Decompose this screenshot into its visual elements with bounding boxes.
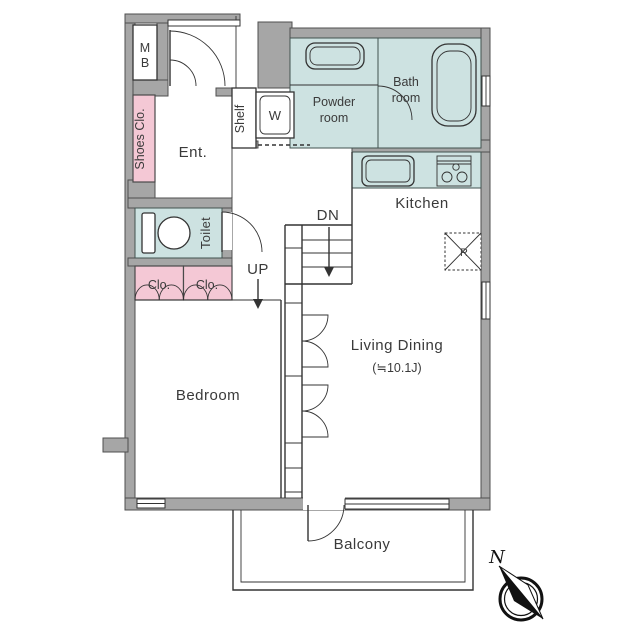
up-label: UP xyxy=(247,261,269,278)
shoes-closet-label: Shoes Clo. xyxy=(133,108,147,169)
washer-label: W xyxy=(269,108,282,123)
balcony-label: Balcony xyxy=(334,536,391,553)
wall-toilet-top xyxy=(128,198,232,208)
up-arrow-head xyxy=(253,299,263,309)
wall-mb-right xyxy=(157,23,168,83)
living-dining-size-label: (≒10.1J) xyxy=(372,361,421,375)
wall-toilet-bottom xyxy=(128,258,232,266)
entrance-label: Ent. xyxy=(179,144,208,161)
compass-north-label: N xyxy=(488,547,506,568)
mb-label-line2: B xyxy=(141,56,149,70)
dn-arrow-head xyxy=(324,267,334,277)
powder-room-label-line1: Powder xyxy=(313,95,355,109)
balcony-doorway-gap xyxy=(303,497,345,510)
toilet-doorway-gap xyxy=(222,212,232,250)
floor-plan-svg: M B Shoes Clo. Ent. Shelf W Powder room … xyxy=(0,0,640,640)
floor-plan: M B Shoes Clo. Ent. Shelf W Powder room … xyxy=(0,0,640,640)
wall-left-stub xyxy=(103,438,128,452)
powder-room-label-line2: room xyxy=(320,111,348,125)
toilet-tank xyxy=(142,213,155,253)
storage-door-2b xyxy=(302,411,328,437)
shelf-label: Shelf xyxy=(233,104,247,133)
living-storage-doors xyxy=(302,315,328,437)
closet-right-label: Clo. xyxy=(196,278,218,292)
closet-left-label: Clo. xyxy=(148,278,170,292)
compass xyxy=(499,566,543,620)
toilet-label: Toilet xyxy=(198,217,213,249)
kitchen-label: Kitchen xyxy=(395,195,449,212)
toilet-bowl xyxy=(158,217,190,249)
bedroom-label: Bedroom xyxy=(176,387,240,404)
wall-pillar-block xyxy=(258,22,292,88)
refrigerator-label: R xyxy=(460,247,468,259)
front-door-arc xyxy=(170,31,225,86)
front-door-track xyxy=(168,20,240,26)
dn-label: DN xyxy=(317,207,340,224)
living-dining-label: Living Dining xyxy=(351,337,443,354)
toilet-fixture xyxy=(142,213,190,253)
front-door-child-arc xyxy=(170,60,196,86)
storage-door-1a xyxy=(302,315,328,341)
storage-door-2a xyxy=(302,385,328,411)
bath-room-label-line1: Bath xyxy=(393,75,419,89)
bath-room-label-line2: room xyxy=(392,91,420,105)
mb-label-line1: M xyxy=(140,41,150,55)
storage-door-1b xyxy=(302,341,328,367)
wall-top-right xyxy=(290,28,490,38)
wall-below-mb xyxy=(133,80,168,96)
wall-ent-top-stub xyxy=(216,88,232,96)
